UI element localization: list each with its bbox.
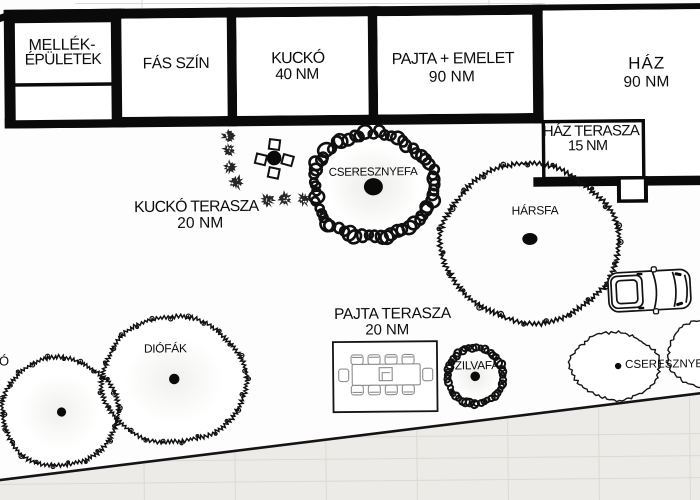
svg-text:CSERESZNYEFA: CSERESZNYEFA [329,166,418,179]
svg-text:90 NM: 90 NM [429,68,475,85]
svg-text:Ó: Ó [0,353,9,368]
svg-text:DIÓFÁK: DIÓFÁK [144,340,187,355]
svg-text:PAJTA TERASZA: PAJTA TERASZA [334,305,452,323]
svg-text:SZILVAFA: SZILVAFA [447,358,499,372]
svg-text:40 NM: 40 NM [275,66,319,83]
svg-text:HÁZ: HÁZ [628,53,664,72]
svg-text:20 NM: 20 NM [365,321,409,338]
svg-text:PAJTA + EMELET: PAJTA + EMELET [392,50,515,68]
svg-text:KUCKÓ: KUCKÓ [271,48,325,68]
svg-text:CSERESZNYEFÁK: CSERESZNYEFÁK [625,357,700,371]
svg-text:15 NM: 15 NM [568,138,608,154]
svg-text:HÁRSFA: HÁRSFA [512,202,559,217]
svg-text:90 NM: 90 NM [623,73,669,90]
svg-text:20 NM: 20 NM [177,215,223,232]
svg-text:ÉPÜLETEK: ÉPÜLETEK [25,50,103,69]
svg-text:FÁS SZÍN: FÁS SZÍN [143,55,210,73]
svg-text:KUCKÓ TERASZA: KUCKÓ TERASZA [134,196,260,216]
